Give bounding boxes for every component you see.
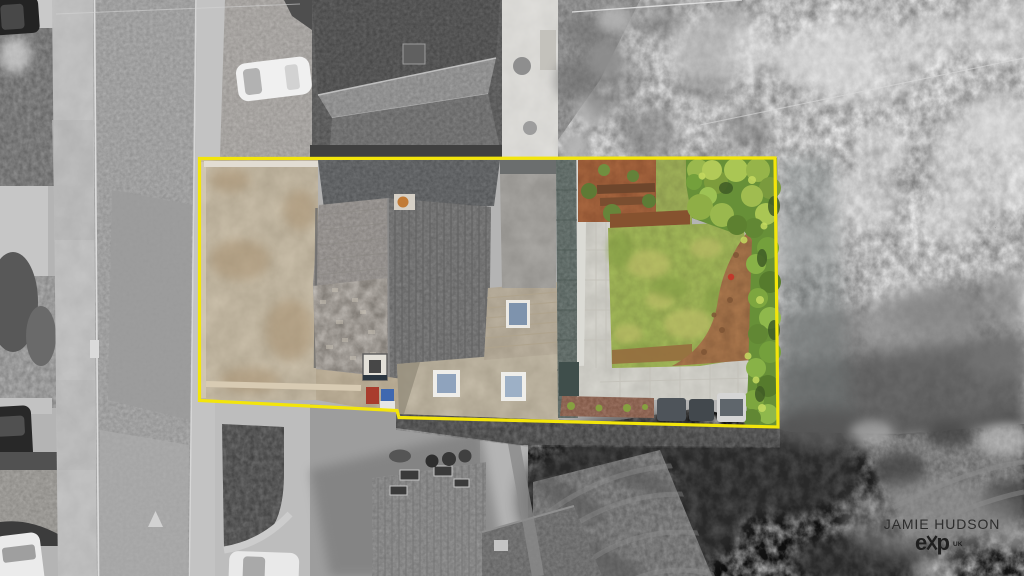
svg-text:e: e (915, 530, 927, 555)
svg-text:UK: UK (953, 541, 963, 548)
svg-text:p: p (937, 530, 950, 555)
